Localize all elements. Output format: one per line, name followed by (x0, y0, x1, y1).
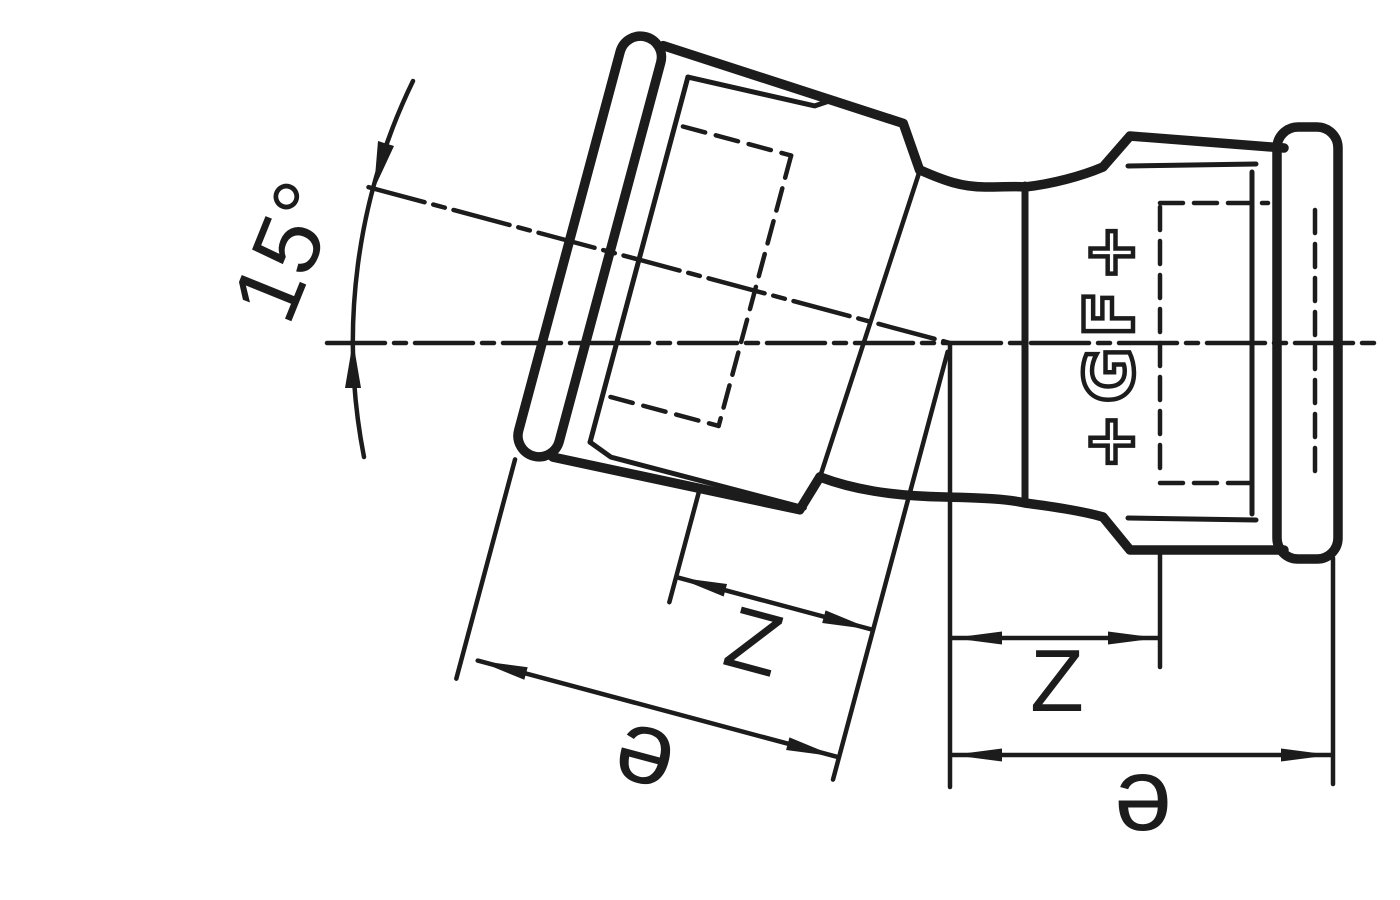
technical-drawing: 15° Z (0, 0, 1400, 900)
right-bottom-band-line (1128, 518, 1256, 520)
right-top-band-line (1128, 164, 1256, 166)
gf-logo: +GF+ (1071, 214, 1150, 470)
z-label-right: Z (1030, 631, 1084, 730)
background (0, 0, 1400, 900)
e-label-right: e (1114, 752, 1172, 868)
drawing-canvas: 15° Z (0, 0, 1400, 900)
